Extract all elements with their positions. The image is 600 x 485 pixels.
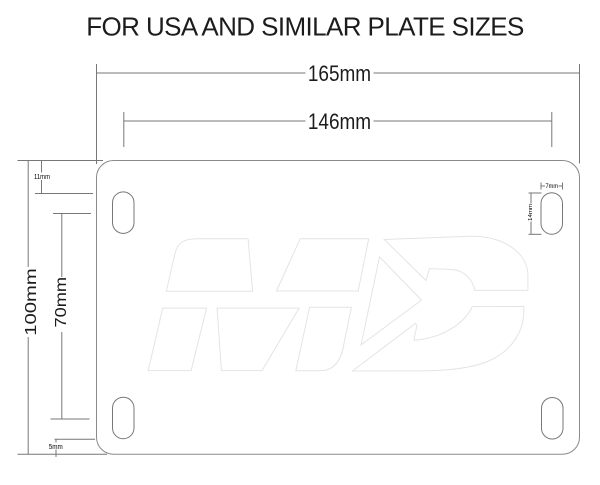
svg-text:165mm: 165mm: [308, 61, 371, 86]
svg-text:70mm: 70mm: [53, 277, 70, 328]
svg-text:14mm: 14mm: [528, 204, 534, 221]
svg-text:FOR USA AND SIMILAR PLATE SIZE: FOR USA AND SIMILAR PLATE SIZES: [86, 12, 524, 42]
svg-text:146mm: 146mm: [308, 109, 371, 134]
svg-text:5mm: 5mm: [49, 442, 63, 451]
svg-text:7mm: 7mm: [546, 183, 559, 190]
svg-text:100mm: 100mm: [23, 268, 40, 336]
svg-text:11mm: 11mm: [34, 172, 50, 181]
